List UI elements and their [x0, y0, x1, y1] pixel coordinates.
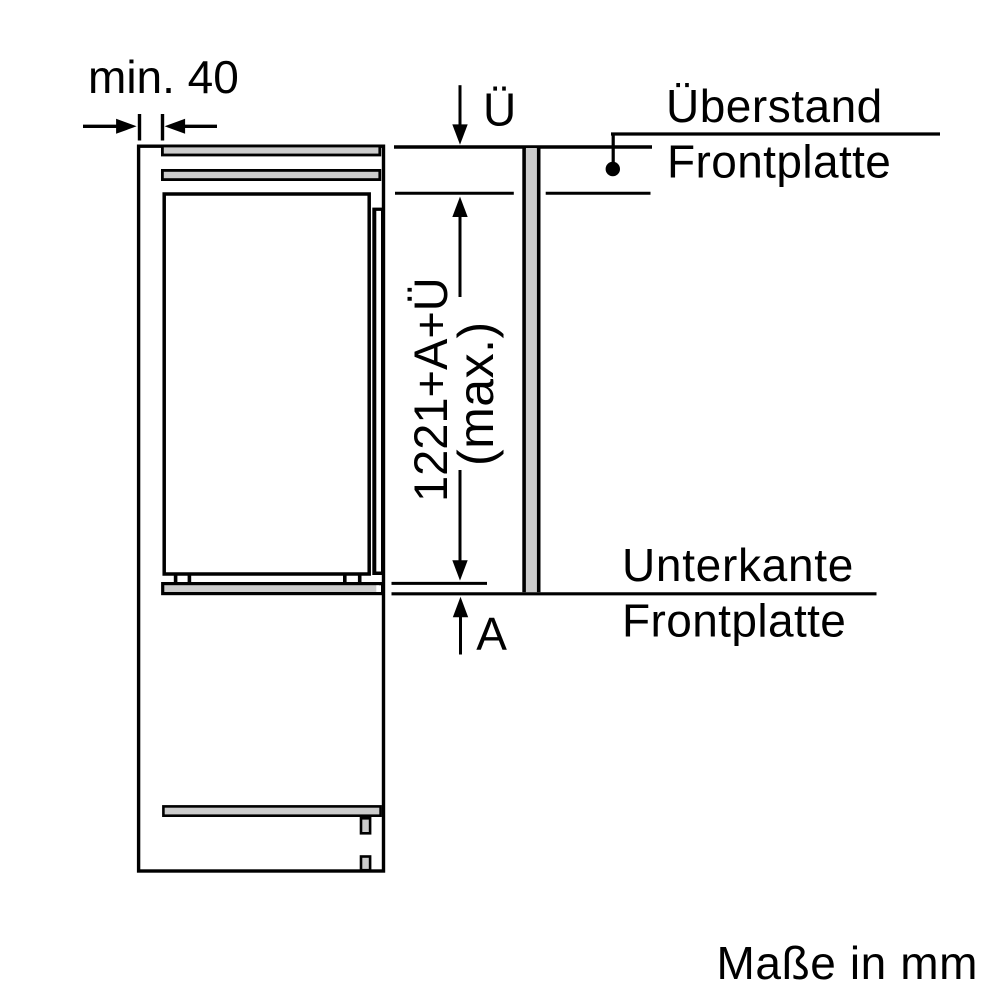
svg-text:Maße in mm: Maße in mm: [717, 937, 979, 989]
svg-text:Ü: Ü: [483, 84, 516, 136]
svg-text:Frontplatte: Frontplatte: [622, 595, 846, 647]
svg-text:Unterkante: Unterkante: [622, 539, 854, 591]
svg-text:Überstand: Überstand: [666, 80, 883, 132]
svg-text:(max.): (max.): [448, 321, 504, 466]
svg-text:A: A: [476, 608, 507, 660]
svg-text:Frontplatte: Frontplatte: [667, 136, 891, 188]
svg-text:min. 40: min. 40: [88, 51, 239, 103]
